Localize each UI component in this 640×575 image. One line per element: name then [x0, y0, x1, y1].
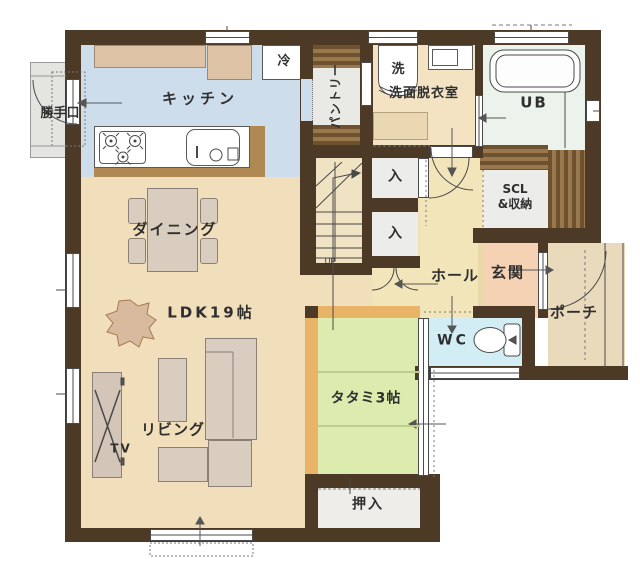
washroom-counter: [373, 112, 428, 140]
wall: [473, 306, 535, 318]
sliding-opening-pantry: [301, 79, 313, 121]
label-stairs-up: UP: [325, 257, 336, 267]
floor-plan: 勝手口 キッチン 冷 パントリー 洗 洗面脱衣室 UB 入 入 SCL &収納 …: [0, 0, 640, 575]
window-ub-side: [586, 100, 600, 122]
dining-chair: [128, 238, 146, 264]
window: [66, 368, 80, 424]
label-tv: TV: [110, 442, 131, 457]
wall: [300, 158, 316, 263]
label-living: リビング: [141, 421, 205, 440]
door-pantry: [361, 62, 372, 106]
label-tatami: タタミ3帖: [331, 390, 402, 408]
stove: [99, 131, 146, 164]
label-washer: 洗: [391, 62, 404, 78]
kitchen-counter-upper-right: [207, 45, 252, 80]
label-dining: ダイニング: [132, 221, 217, 240]
kitchen-counter-upper-left: [94, 45, 206, 68]
label-washroom: 洗面脱衣室: [389, 86, 459, 102]
wall: [473, 228, 601, 243]
wall: [522, 318, 535, 366]
door-closet-upper: [418, 158, 429, 198]
wall: [372, 198, 418, 212]
sofa: [205, 338, 257, 440]
wall: [362, 158, 372, 263]
wall: [585, 30, 601, 243]
scl-shelf-top: [480, 145, 548, 170]
label-katteguchi: 勝手口: [40, 106, 79, 122]
wall: [300, 263, 372, 275]
window-wc: [430, 367, 520, 379]
wall: [305, 488, 318, 528]
door-genkan: [538, 252, 548, 310]
window: [66, 253, 80, 308]
sofa-corner: [208, 440, 252, 487]
label-oshiire: 押入: [352, 496, 384, 514]
wall: [420, 474, 440, 542]
wall: [368, 256, 420, 268]
sofa-side-table: [158, 358, 187, 422]
label-closet-lower: 入: [388, 225, 402, 243]
label-unit-bath: UB: [520, 94, 548, 113]
label-closet-upper: 入: [388, 168, 402, 186]
label-scl: SCL &収納: [498, 182, 532, 212]
label-kitchen: キッチン: [162, 90, 238, 109]
label-wc: WC: [437, 332, 469, 350]
window: [205, 31, 250, 44]
sliding-door-ub: [475, 95, 483, 147]
tv-board: [92, 372, 122, 478]
label-fridge: 冷: [277, 54, 290, 70]
wall: [305, 306, 318, 318]
window-living-sliding: [150, 529, 253, 541]
window: [368, 31, 418, 44]
window: [494, 31, 569, 44]
kitchen-counter-edge-bottom: [94, 168, 265, 177]
wall: [305, 474, 424, 488]
wall: [538, 310, 548, 318]
sliding-door-tatami: [418, 318, 429, 476]
dining-chair: [200, 238, 218, 264]
ottoman: [158, 447, 208, 482]
tatami-frame-top: [305, 306, 420, 318]
label-porch: ポーチ: [550, 304, 598, 323]
opening-washroom: [430, 146, 473, 158]
label-hall: ホール: [431, 267, 479, 286]
wood-slat-screen: [548, 150, 588, 228]
label-ldk: LDK19帖: [167, 304, 255, 323]
wall: [600, 366, 628, 380]
vanity-bowl: [432, 49, 458, 66]
kitchen-sink: [186, 129, 240, 166]
label-pantry: パントリー: [329, 63, 344, 129]
tatami-frame-left: [305, 306, 318, 480]
label-entrance: 玄関: [491, 264, 525, 283]
wall: [538, 243, 548, 252]
